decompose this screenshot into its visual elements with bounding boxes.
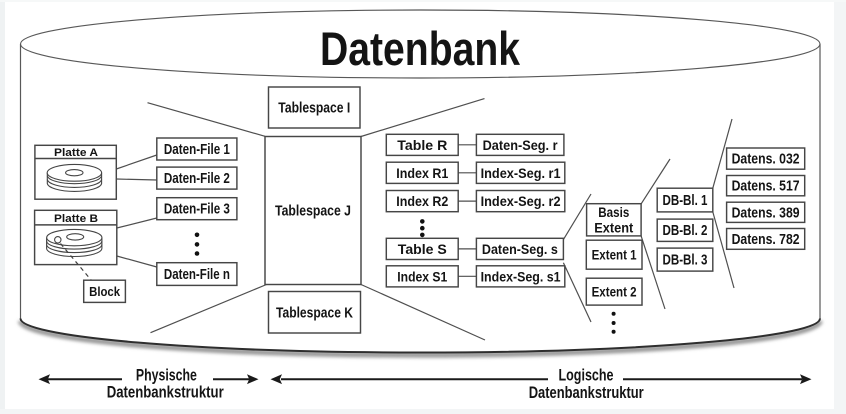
svg-text:Index S1: Index S1 <box>397 268 447 284</box>
svg-text:Tablespace K: Tablespace K <box>276 306 353 322</box>
svg-text:Physische: Physische <box>136 365 197 384</box>
svg-text:Datenbank: Datenbank <box>320 22 521 75</box>
svg-text:DB-Bl. 3: DB-Bl. 3 <box>663 253 708 269</box>
svg-text:Index R2: Index R2 <box>396 193 448 209</box>
svg-text:Daten-Seg. s: Daten-Seg. s <box>482 241 558 257</box>
svg-text:Index-Seg. s1: Index-Seg. s1 <box>481 268 561 284</box>
svg-text:Datens. 032: Datens. 032 <box>732 152 800 168</box>
svg-text:Extent 1: Extent 1 <box>592 246 637 262</box>
svg-text:Daten-File n: Daten-File n <box>164 267 230 283</box>
svg-text:Platte B: Platte B <box>54 213 98 225</box>
svg-text:Datens. 782: Datens. 782 <box>732 232 800 248</box>
svg-text:Basis: Basis <box>598 205 629 220</box>
svg-text:Datens. 517: Datens. 517 <box>732 179 800 195</box>
svg-text:Daten-File 3: Daten-File 3 <box>164 202 230 218</box>
svg-text:DB-Bl. 1: DB-Bl. 1 <box>663 193 708 209</box>
svg-text:Datenbankstruktur: Datenbankstruktur <box>107 383 224 402</box>
svg-text:Logische: Logische <box>559 365 614 384</box>
svg-text:Platte A: Platte A <box>54 147 98 159</box>
svg-text:Daten-Seg. r: Daten-Seg. r <box>483 137 558 153</box>
svg-text:Datens. 389: Datens. 389 <box>732 205 800 221</box>
svg-text:Table S: Table S <box>398 241 447 257</box>
svg-text:Index-Seg. r1: Index-Seg. r1 <box>481 165 561 181</box>
svg-text:Tablespace I: Tablespace I <box>278 101 350 117</box>
svg-text:Extent: Extent <box>594 220 633 235</box>
svg-text:Block: Block <box>89 284 121 299</box>
svg-text:Index R1: Index R1 <box>396 165 448 181</box>
svg-text:Extent 2: Extent 2 <box>592 283 637 299</box>
svg-text:DB-Bl. 2: DB-Bl. 2 <box>663 223 708 239</box>
svg-text:Datenbankstruktur: Datenbankstruktur <box>529 383 644 402</box>
svg-text:Index-Seg. r2: Index-Seg. r2 <box>481 193 561 209</box>
svg-text:Daten-File 2: Daten-File 2 <box>164 171 230 187</box>
svg-text:Daten-File 1: Daten-File 1 <box>164 142 230 158</box>
svg-text:Tablespace J: Tablespace J <box>275 204 351 220</box>
svg-text:Table R: Table R <box>397 137 447 153</box>
